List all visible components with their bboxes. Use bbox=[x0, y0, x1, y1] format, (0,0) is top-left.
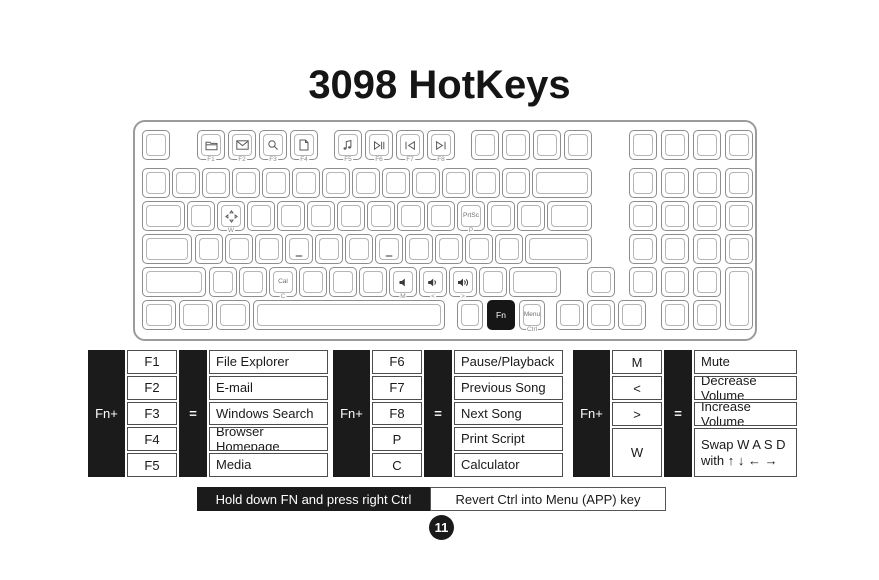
key-slash bbox=[479, 267, 507, 297]
key-ralt bbox=[457, 300, 483, 330]
key-rk bbox=[277, 201, 305, 231]
equals-column: = bbox=[179, 350, 207, 477]
function-column: MuteDecrease VolumeIncrease VolumeSwap W… bbox=[694, 350, 797, 477]
key-np-d2 bbox=[661, 234, 689, 264]
keycap-top bbox=[453, 271, 473, 293]
key-column: F1F2F3F4F5 bbox=[127, 350, 177, 477]
keycap-top bbox=[201, 134, 221, 156]
table-function-cell: Decrease Volume bbox=[694, 376, 797, 400]
keycap-top bbox=[251, 205, 271, 227]
keycap-top bbox=[665, 134, 685, 156]
keycap-top bbox=[560, 304, 580, 326]
key-sublabel: F7 bbox=[405, 157, 415, 164]
page-number-badge: 11 bbox=[429, 515, 454, 540]
keycap-top bbox=[146, 238, 188, 260]
keycap-top bbox=[236, 172, 256, 194]
key-f7: F7 bbox=[396, 130, 424, 160]
key-ok bbox=[427, 201, 455, 231]
key-f6: F6 bbox=[365, 130, 393, 160]
key-np-c4 bbox=[725, 201, 753, 231]
keycap-top bbox=[622, 304, 642, 326]
page-title: 3098 HotKeys bbox=[0, 63, 879, 108]
keycap-top bbox=[409, 238, 429, 260]
table-key-cell: W bbox=[612, 428, 662, 477]
key-np-c2 bbox=[661, 201, 689, 231]
keycap-top bbox=[697, 304, 717, 326]
keycap-top bbox=[146, 172, 166, 194]
hotkey-table-3: Fn+M<>W=MuteDecrease VolumeIncrease Volu… bbox=[573, 350, 797, 477]
table-key-cell: C bbox=[372, 453, 422, 477]
keyboard: F1F2F3F4F5F6F7F8WPrtScPCalCM<>FnMenuCtrl bbox=[133, 120, 757, 341]
key-column: M<>W bbox=[612, 350, 662, 477]
key-np-enter bbox=[725, 267, 753, 330]
keycap-top bbox=[349, 238, 369, 260]
key-sublabel: F4 bbox=[299, 157, 309, 164]
keycap-top bbox=[529, 238, 588, 260]
key-lalt bbox=[216, 300, 250, 330]
function-column: Pause/PlaybackPrevious SongNext SongPrin… bbox=[454, 350, 563, 477]
key-np-a4 bbox=[725, 130, 753, 160]
table-key-cell: F5 bbox=[127, 453, 177, 477]
keycap-top: PrtSc bbox=[461, 205, 481, 227]
equals-column: = bbox=[424, 350, 452, 477]
homing-bar bbox=[386, 255, 393, 257]
keycap-top bbox=[386, 172, 406, 194]
keycap-top bbox=[591, 271, 611, 293]
keycap-top bbox=[326, 172, 346, 194]
key-label: Cal bbox=[278, 279, 288, 286]
table-function-cell: Previous Song bbox=[454, 376, 563, 400]
homepage-icon bbox=[299, 139, 309, 151]
keycap-top bbox=[446, 172, 466, 194]
keycap-top bbox=[423, 271, 443, 293]
keycap-top: Cal bbox=[273, 271, 293, 293]
key-v bbox=[299, 267, 327, 297]
key-quote bbox=[495, 234, 523, 264]
volume-up-icon bbox=[457, 277, 470, 288]
key-m: M bbox=[389, 267, 417, 297]
key-n0 bbox=[442, 168, 470, 198]
keycap-top bbox=[469, 238, 489, 260]
keycap-top bbox=[356, 172, 376, 194]
key-f12 bbox=[564, 130, 592, 160]
keycap-top bbox=[633, 134, 653, 156]
keycap-top bbox=[176, 172, 196, 194]
key-np-a1 bbox=[629, 130, 657, 160]
keycap-top bbox=[431, 134, 451, 156]
key-h bbox=[345, 234, 373, 264]
key-g bbox=[315, 234, 343, 264]
keycap-top bbox=[665, 271, 685, 293]
keycap-top bbox=[338, 134, 358, 156]
keycap-top bbox=[333, 271, 353, 293]
key-np-2 bbox=[661, 267, 689, 297]
table-key-cell: F4 bbox=[127, 427, 177, 451]
key-esc bbox=[142, 130, 170, 160]
keycap-top bbox=[296, 172, 316, 194]
key-win bbox=[179, 300, 213, 330]
keycap-top bbox=[232, 134, 252, 156]
key-equal bbox=[502, 168, 530, 198]
table-function-cell: Browser Homepage bbox=[209, 427, 328, 451]
keycap-top bbox=[206, 172, 226, 194]
key-sublabel: F8 bbox=[436, 157, 446, 164]
keycap-top bbox=[461, 304, 479, 326]
key-np-a3 bbox=[693, 130, 721, 160]
search-icon bbox=[267, 139, 279, 151]
keycap-top bbox=[499, 238, 519, 260]
keycap-top bbox=[568, 134, 588, 156]
key-n3 bbox=[232, 168, 260, 198]
keycap-top bbox=[363, 271, 383, 293]
keycap-top bbox=[401, 205, 421, 227]
keycap-top bbox=[633, 271, 653, 293]
keycap-top bbox=[439, 238, 459, 260]
key-minus bbox=[472, 168, 500, 198]
keycap-top bbox=[400, 134, 420, 156]
key-yk bbox=[337, 201, 365, 231]
homing-bar bbox=[296, 255, 303, 257]
hotkey-table-1: Fn+F1F2F3F4F5=File ExplorerE-mailWindows… bbox=[88, 350, 328, 477]
key-j bbox=[375, 234, 403, 264]
move-arrows-icon bbox=[225, 210, 238, 223]
keycap-top bbox=[431, 205, 451, 227]
table-key-cell: F8 bbox=[372, 402, 422, 426]
table-function-cell: File Explorer bbox=[209, 350, 328, 374]
key-arrow-left bbox=[556, 300, 584, 330]
key-sublabel: F3 bbox=[268, 157, 278, 164]
keycap-top bbox=[729, 205, 749, 227]
table-function-cell: Mute bbox=[694, 350, 797, 374]
key-f10 bbox=[502, 130, 530, 160]
key-lbracket bbox=[487, 201, 515, 231]
key-n9 bbox=[412, 168, 440, 198]
key-b bbox=[329, 267, 357, 297]
key-lctrl bbox=[142, 300, 176, 330]
key-d bbox=[255, 234, 283, 264]
keycap-top bbox=[665, 238, 685, 260]
keycap-top: Menu bbox=[523, 304, 541, 326]
keycap-top bbox=[697, 134, 717, 156]
key-n8 bbox=[382, 168, 410, 198]
keycap-top bbox=[199, 238, 219, 260]
keycap-top bbox=[506, 172, 526, 194]
key-np-c1 bbox=[629, 201, 657, 231]
keycap-top bbox=[537, 134, 557, 156]
footer-note-black: Hold down FN and press right Ctrl bbox=[197, 487, 430, 511]
table-key-cell: > bbox=[612, 402, 662, 426]
keycap-top bbox=[697, 205, 717, 227]
keycap-top bbox=[311, 205, 331, 227]
key-arrow-right bbox=[618, 300, 646, 330]
key-np-d4 bbox=[725, 234, 753, 264]
key-w: W bbox=[217, 201, 245, 231]
table-key-cell: F7 bbox=[372, 376, 422, 400]
key-np-b2 bbox=[661, 168, 689, 198]
next-track-icon bbox=[435, 140, 447, 151]
table-function-cell: Windows Search bbox=[209, 402, 328, 426]
hotkey-table-2: Fn+F6F7F8PC=Pause/PlaybackPrevious SongN… bbox=[333, 350, 563, 477]
keycap-top bbox=[513, 271, 557, 293]
keycap-top bbox=[665, 172, 685, 194]
key-np-0 bbox=[661, 300, 689, 330]
key-np-d1 bbox=[629, 234, 657, 264]
table-key-cell: F2 bbox=[127, 376, 177, 400]
key-np-3 bbox=[693, 267, 721, 297]
key-space bbox=[253, 300, 445, 330]
prev-track-icon bbox=[404, 140, 416, 151]
key-sublabel: F5 bbox=[343, 157, 353, 164]
keycap-top bbox=[229, 238, 249, 260]
key-f3: F3 bbox=[259, 130, 287, 160]
keycap-top bbox=[220, 304, 246, 326]
key-np-c3 bbox=[693, 201, 721, 231]
key-arrow-down bbox=[587, 300, 615, 330]
key-e bbox=[247, 201, 275, 231]
key-sublabel: Ctrl bbox=[526, 327, 538, 334]
keycap-top bbox=[213, 271, 233, 293]
key-np-1 bbox=[629, 267, 657, 297]
fn-column: Fn+ bbox=[333, 350, 370, 477]
key-rshift bbox=[509, 267, 561, 297]
keycap-top bbox=[303, 271, 323, 293]
key-z bbox=[209, 267, 237, 297]
keycap-top bbox=[341, 205, 361, 227]
keycap-top bbox=[697, 238, 717, 260]
key-l bbox=[435, 234, 463, 264]
table-key-cell: F1 bbox=[127, 350, 177, 374]
table-key-cell: < bbox=[612, 376, 662, 400]
key-n5 bbox=[292, 168, 320, 198]
key-n6 bbox=[322, 168, 350, 198]
key-np-b4 bbox=[725, 168, 753, 198]
key-k bbox=[405, 234, 433, 264]
keycap-top bbox=[294, 134, 314, 156]
keycap-top bbox=[243, 271, 263, 293]
key-menu: MenuCtrl bbox=[519, 300, 545, 330]
table-function-cell: E-mail bbox=[209, 376, 328, 400]
key-enter bbox=[525, 234, 592, 264]
key-sublabel: F6 bbox=[374, 157, 384, 164]
key-s bbox=[225, 234, 253, 264]
mute-icon bbox=[398, 277, 409, 288]
keycap-top bbox=[416, 172, 436, 194]
keycap-top bbox=[729, 238, 749, 260]
keycap-top bbox=[146, 304, 172, 326]
keycap-top bbox=[633, 238, 653, 260]
keycap-top bbox=[729, 271, 749, 326]
keycap-top bbox=[146, 205, 181, 227]
volume-down-icon bbox=[427, 277, 439, 288]
keycap-top bbox=[379, 238, 399, 260]
table-key-cell: M bbox=[612, 350, 662, 374]
table-key-cell: F3 bbox=[127, 402, 177, 426]
key-semicolon bbox=[465, 234, 493, 264]
keycap-top bbox=[183, 304, 209, 326]
key-backspace bbox=[532, 168, 592, 198]
keycap-top bbox=[633, 205, 653, 227]
keycap-top bbox=[259, 238, 279, 260]
key-n2 bbox=[202, 168, 230, 198]
keycap-top bbox=[266, 172, 286, 194]
key-c: CalC bbox=[269, 267, 297, 297]
table-function-cell: Media bbox=[209, 453, 328, 477]
key-np-b3 bbox=[693, 168, 721, 198]
keycap-top bbox=[665, 304, 685, 326]
keycap-top bbox=[393, 271, 413, 293]
key-column: F6F7F8PC bbox=[372, 350, 422, 477]
keycap-top bbox=[551, 205, 588, 227]
keycap-top bbox=[729, 172, 749, 194]
key-lshift bbox=[142, 267, 206, 297]
keycap-top bbox=[369, 134, 389, 156]
keycap-top bbox=[289, 238, 309, 260]
key-f2: F2 bbox=[228, 130, 256, 160]
table-key-cell: P bbox=[372, 427, 422, 451]
key-np-b1 bbox=[629, 168, 657, 198]
key-n7 bbox=[352, 168, 380, 198]
keycap-top bbox=[371, 205, 391, 227]
key-uk bbox=[367, 201, 395, 231]
keycap-top bbox=[476, 172, 496, 194]
key-f bbox=[285, 234, 313, 264]
function-column: File ExplorerE-mailWindows SearchBrowser… bbox=[209, 350, 328, 477]
key-np-a2 bbox=[661, 130, 689, 160]
fn-column: Fn+ bbox=[88, 350, 125, 477]
key-np-d3 bbox=[693, 234, 721, 264]
keycap-top bbox=[591, 304, 611, 326]
mail-icon bbox=[236, 140, 249, 150]
keycap-top bbox=[697, 271, 717, 293]
key-tk bbox=[307, 201, 335, 231]
media-icon bbox=[342, 139, 354, 151]
keycap-top bbox=[319, 238, 339, 260]
keycap-top bbox=[475, 134, 495, 156]
keycap-top bbox=[633, 172, 653, 194]
keycap-top bbox=[729, 134, 749, 156]
key-q bbox=[187, 201, 215, 231]
equals-column: = bbox=[664, 350, 692, 477]
table-function-cell: Pause/Playback bbox=[454, 350, 563, 374]
key-ik bbox=[397, 201, 425, 231]
key-p: PrtScP bbox=[457, 201, 485, 231]
key-caps bbox=[142, 234, 192, 264]
key-n4 bbox=[262, 168, 290, 198]
key-f5: F5 bbox=[334, 130, 362, 160]
keycap-top bbox=[521, 205, 541, 227]
key-f11 bbox=[533, 130, 561, 160]
key-label: Menu bbox=[524, 312, 540, 319]
key-rbracket bbox=[517, 201, 545, 231]
table-function-cell: Calculator bbox=[454, 453, 563, 477]
key-fn: Fn bbox=[487, 300, 515, 330]
key-f9 bbox=[471, 130, 499, 160]
keycap-top bbox=[263, 134, 283, 156]
keycap-top bbox=[281, 205, 301, 227]
key-backslash bbox=[547, 201, 592, 231]
footer-note-white: Revert Ctrl into Menu (APP) key bbox=[430, 487, 666, 511]
table-key-cell: F6 bbox=[372, 350, 422, 374]
key-np-dot bbox=[693, 300, 721, 330]
fn-column: Fn+ bbox=[573, 350, 610, 477]
key-x bbox=[239, 267, 267, 297]
key-f1: F1 bbox=[197, 130, 225, 160]
key-tab bbox=[142, 201, 185, 231]
table-function-cell: Swap W A S D with ↑ ↓ ← → bbox=[694, 428, 797, 477]
keycap-top bbox=[257, 304, 441, 326]
key-sublabel: F2 bbox=[237, 157, 247, 164]
table-function-cell: Print Script bbox=[454, 427, 563, 451]
key-n bbox=[359, 267, 387, 297]
key-label: PrtSc bbox=[463, 213, 479, 220]
key-n1 bbox=[172, 168, 200, 198]
key-f8: F8 bbox=[427, 130, 455, 160]
key-period: > bbox=[449, 267, 477, 297]
table-function-cell: Next Song bbox=[454, 402, 563, 426]
keycap-top bbox=[191, 205, 211, 227]
key-sublabel: F1 bbox=[206, 157, 216, 164]
key-a bbox=[195, 234, 223, 264]
key-grave bbox=[142, 168, 170, 198]
play-pause-icon bbox=[373, 140, 385, 151]
keycap-top bbox=[146, 271, 202, 293]
key-f4: F4 bbox=[290, 130, 318, 160]
key-comma: < bbox=[419, 267, 447, 297]
keycap-top bbox=[506, 134, 526, 156]
keycap-top bbox=[483, 271, 503, 293]
table-function-cell: Increase Volume bbox=[694, 402, 797, 426]
keycap-top bbox=[146, 134, 166, 156]
keycap-top bbox=[536, 172, 588, 194]
file-explorer-icon bbox=[205, 140, 218, 151]
keycap-top bbox=[665, 205, 685, 227]
keycap-top bbox=[221, 205, 241, 227]
keycap-top bbox=[697, 172, 717, 194]
key-arrow-up bbox=[587, 267, 615, 297]
keycap-top bbox=[491, 205, 511, 227]
